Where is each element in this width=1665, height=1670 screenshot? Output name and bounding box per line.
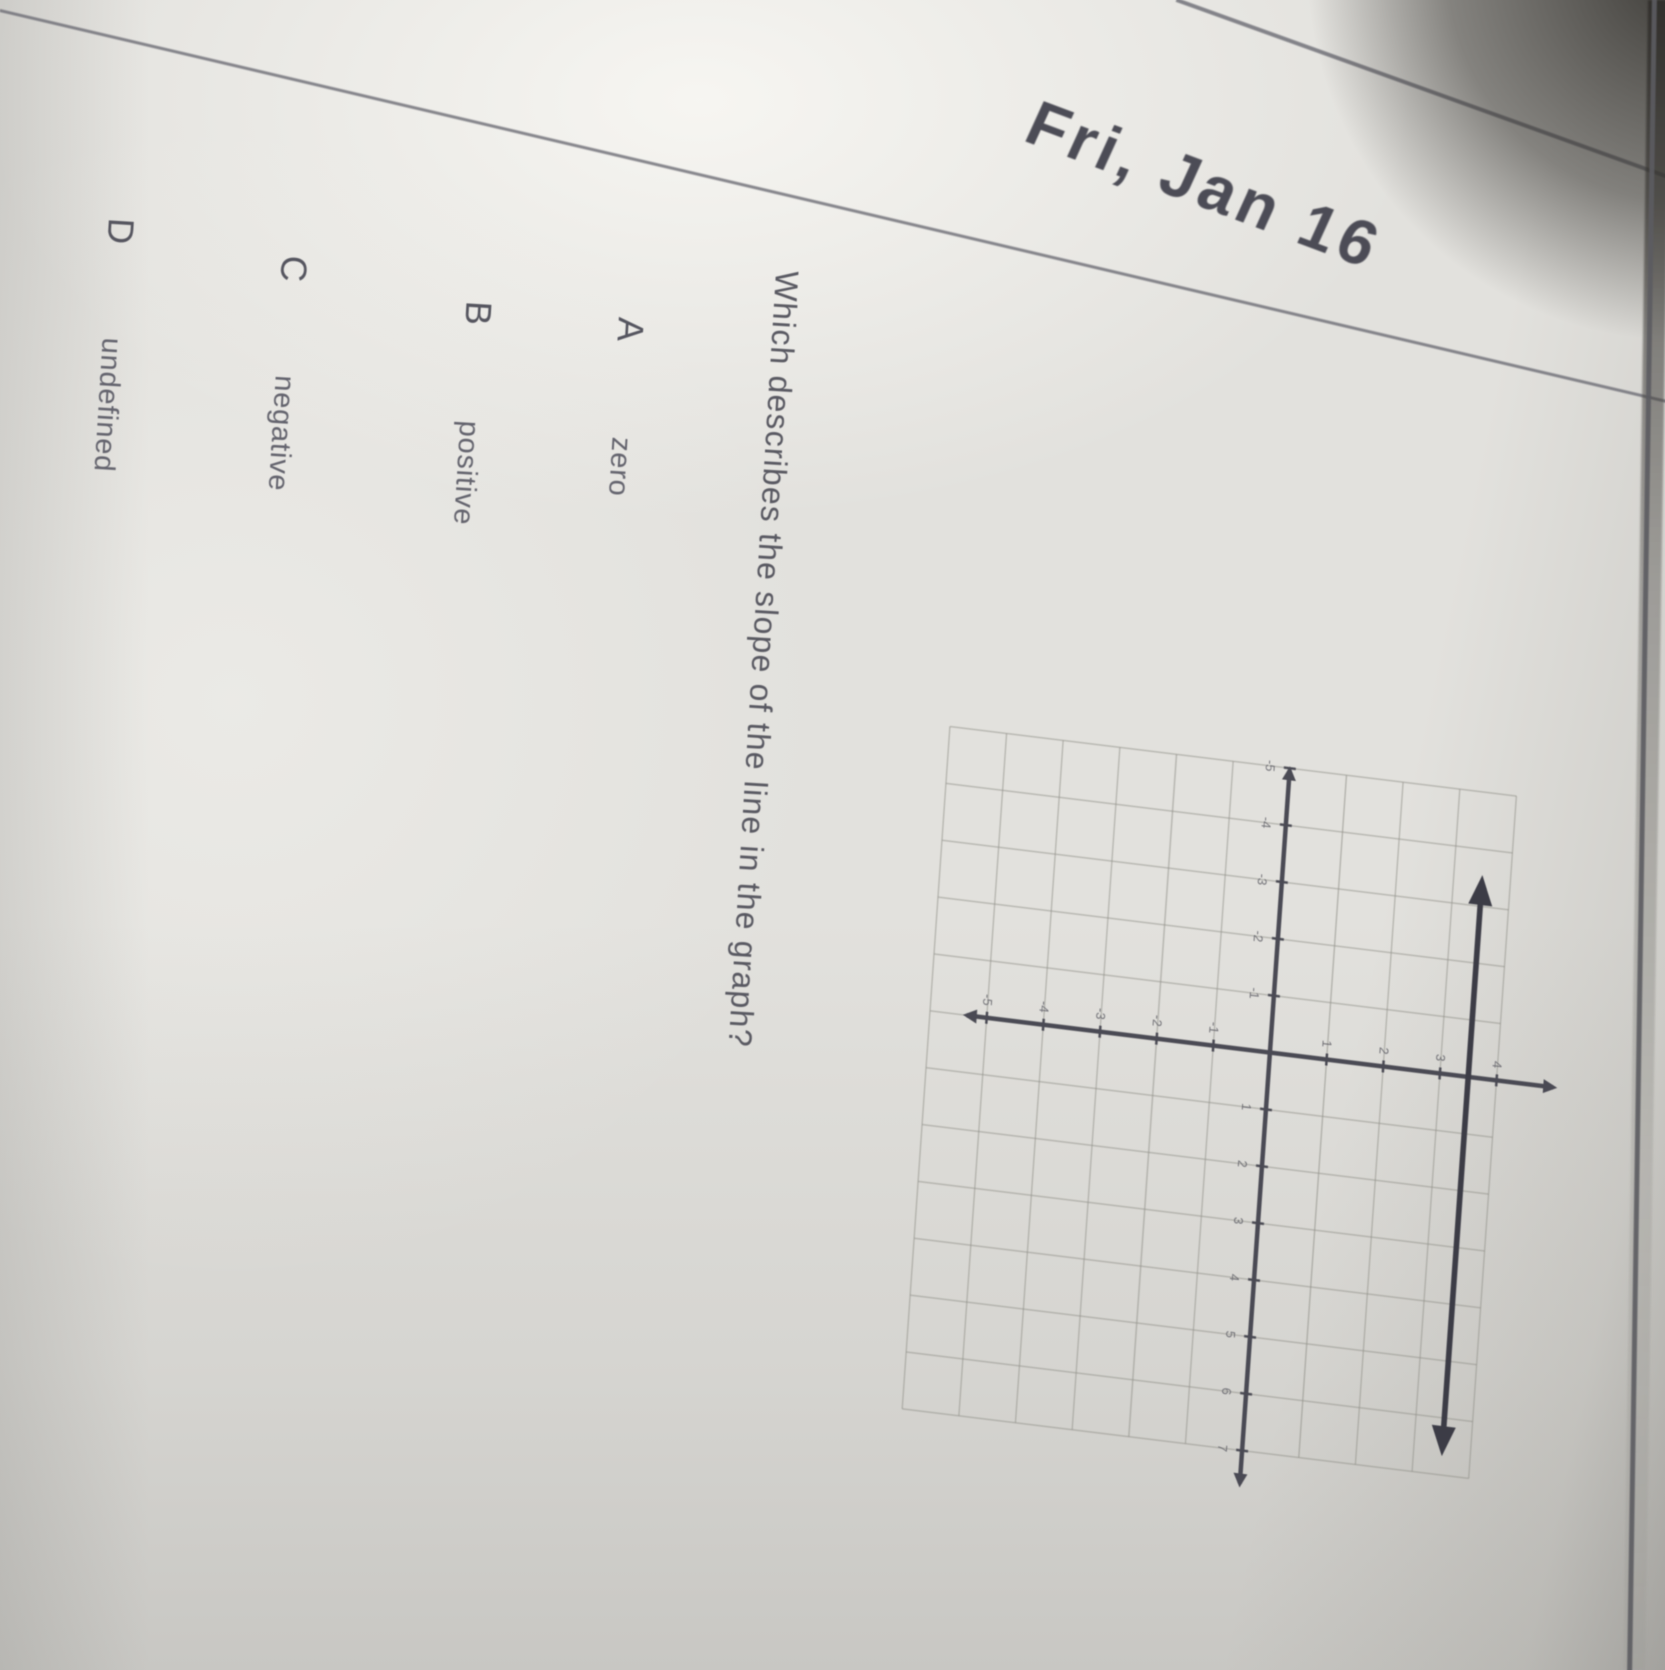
x-axis-tick-label: -2 bbox=[1251, 930, 1267, 943]
option-b-label: positive bbox=[446, 420, 485, 527]
option-d: D undefined bbox=[98, 217, 142, 246]
graph-block: -5-4-3-2-11234567-5-4-3-2-11234 bbox=[863, 684, 1534, 1538]
question-text: Which describes the slope of the line in… bbox=[721, 270, 805, 1049]
coordinate-grid-graph: -5-4-3-2-11234567-5-4-3-2-11234 bbox=[863, 684, 1534, 1538]
y-axis-tick bbox=[1439, 1067, 1440, 1079]
x-axis-tick bbox=[1272, 938, 1284, 939]
x-axis-arrow-right bbox=[1233, 1473, 1248, 1489]
y-axis-tick bbox=[1326, 1054, 1327, 1066]
option-a: A zero bbox=[608, 316, 651, 343]
y-axis bbox=[967, 1015, 1553, 1087]
x-axis-tick bbox=[1280, 824, 1292, 825]
grid-line-horizontal bbox=[902, 727, 950, 1409]
option-a-label: zero bbox=[601, 436, 638, 498]
date-header: Fri, Jan 16 bbox=[1015, 86, 1394, 284]
y-axis-tick-label: 1 bbox=[1319, 1039, 1334, 1048]
grid-line-horizontal bbox=[1412, 789, 1460, 1471]
x-axis-tick bbox=[1252, 1222, 1264, 1223]
y-axis-tick-label: -2 bbox=[1150, 1014, 1166, 1027]
y-axis-tick bbox=[1043, 1019, 1044, 1031]
ruled-line-short bbox=[1176, 0, 1665, 184]
x-axis-tick bbox=[1276, 881, 1288, 882]
x-axis-tick bbox=[1260, 1109, 1272, 1110]
option-b-letter: B bbox=[457, 300, 499, 326]
y-axis-tick bbox=[1100, 1026, 1101, 1038]
x-axis-tick-label: -5 bbox=[1263, 759, 1279, 772]
paper-edge-shadow bbox=[1623, 0, 1665, 1670]
option-c: C negative bbox=[271, 254, 315, 283]
grid-line-horizontal bbox=[1355, 782, 1403, 1464]
x-axis-tick bbox=[1248, 1279, 1260, 1280]
grid-line-horizontal bbox=[959, 733, 1007, 1415]
plotted-line bbox=[1444, 901, 1481, 1430]
y-axis-arrow-top bbox=[1543, 1079, 1558, 1095]
plotted-line-arrow-right bbox=[1430, 1425, 1456, 1458]
y-axis-tick-label: -3 bbox=[1093, 1007, 1109, 1020]
grid-line-horizontal bbox=[1072, 747, 1120, 1429]
y-axis-tick bbox=[1496, 1074, 1497, 1086]
x-axis-tick bbox=[1236, 1450, 1248, 1451]
x-axis-tick-label: -1 bbox=[1247, 987, 1263, 1000]
y-axis-tick bbox=[1213, 1040, 1214, 1052]
x-axis-tick-label: 6 bbox=[1219, 1387, 1234, 1396]
x-axis-tick-label: 3 bbox=[1231, 1216, 1246, 1225]
x-axis-tick bbox=[1256, 1166, 1268, 1167]
y-axis-tick bbox=[1383, 1060, 1384, 1072]
y-axis-tick bbox=[986, 1012, 987, 1024]
x-axis-tick-label: -4 bbox=[1259, 816, 1275, 829]
grid-line-horizontal bbox=[1129, 754, 1177, 1436]
option-d-label: undefined bbox=[87, 337, 128, 473]
option-b: B positive bbox=[456, 300, 499, 327]
x-axis-tick bbox=[1244, 1336, 1256, 1337]
x-axis-tick bbox=[1284, 768, 1296, 769]
grid-line-horizontal bbox=[1185, 761, 1233, 1443]
plotted-line-arrow-left bbox=[1468, 874, 1494, 907]
x-axis-tick-label: 5 bbox=[1223, 1330, 1238, 1339]
option-d-letter: D bbox=[99, 217, 142, 245]
x-axis-tick bbox=[1240, 1393, 1252, 1394]
grid-line-horizontal bbox=[1299, 775, 1347, 1457]
option-c-label: negative bbox=[261, 374, 301, 492]
y-axis-tick-label: -1 bbox=[1206, 1021, 1222, 1034]
x-axis-tick bbox=[1268, 995, 1280, 996]
x-axis-tick-label: 7 bbox=[1215, 1444, 1230, 1453]
y-axis-tick-label: -4 bbox=[1036, 1000, 1052, 1013]
option-c-letter: C bbox=[272, 255, 315, 283]
worksheet-text-block: Which describes the slope of the line in… bbox=[0, 217, 805, 1270]
x-axis-tick-label: -3 bbox=[1255, 873, 1271, 886]
x-axis-tick-label: 2 bbox=[1235, 1159, 1250, 1168]
y-axis-tick-label: 4 bbox=[1489, 1060, 1504, 1069]
option-a-letter: A bbox=[609, 316, 651, 342]
y-axis-arrow-bottom bbox=[962, 1008, 977, 1024]
y-axis-tick bbox=[1156, 1033, 1157, 1045]
grid-line-horizontal bbox=[1016, 740, 1064, 1422]
y-axis-tick-label: 2 bbox=[1376, 1046, 1391, 1055]
x-axis-tick-label: 4 bbox=[1227, 1273, 1242, 1282]
worksheet-photo: Fri, Jan 16 Which describes the slope of… bbox=[0, 0, 1665, 1670]
y-axis-tick-label: 3 bbox=[1433, 1053, 1448, 1062]
y-axis-tick-label: -5 bbox=[980, 993, 996, 1006]
x-axis-tick-label: 1 bbox=[1239, 1103, 1254, 1112]
